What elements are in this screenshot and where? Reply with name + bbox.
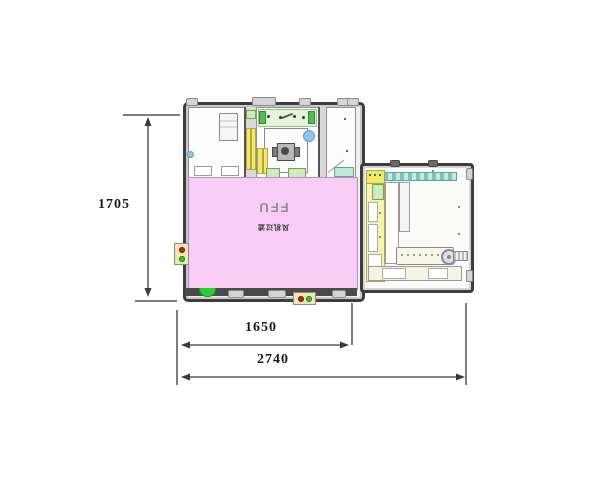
fastener-dot [379,236,381,238]
fastener-dot [267,115,270,118]
lifting-tab [299,98,311,106]
side-tab [466,168,473,180]
green-indicator-light [179,256,185,262]
inner-width-dimension-label: 1650 [236,320,286,336]
total-width-dimension-arrow [180,371,466,383]
fastener-dot [374,174,376,176]
lifting-tab [347,98,359,106]
band-end-block [259,111,266,124]
side-indicator-panel [174,243,189,265]
lifting-tab [428,160,438,167]
machine-foot [268,290,286,298]
fastener-dot [344,118,346,120]
lifting-tab [186,98,198,106]
extension-line-left [176,310,178,385]
panel-slot [368,202,378,222]
fastener-dot [302,116,305,119]
vertical-dimension-arrow [141,116,155,298]
door-notch [221,166,239,176]
door-notch [194,166,212,176]
vertical-guide [399,182,410,232]
linear-rail [383,172,457,181]
fastener-dot [379,174,381,176]
bottom-indicator-panel [293,292,316,305]
ffu-zone: FFU 风机过滤 [188,177,358,290]
fastener-dot [458,233,460,235]
terminal-block [366,170,385,184]
inner-width-dimension-arrow [180,339,350,351]
red-indicator-light [179,247,185,253]
band-end-block [308,111,315,124]
height-dimension-label: 1705 [94,197,134,213]
red-indicator-light [298,296,304,302]
machine-foot [332,290,346,298]
ffu-sublabel: 风机过滤 [189,222,357,232]
extension-line-mid [351,303,353,345]
lifting-tab [390,160,400,167]
fastener-dot [458,206,460,208]
fastener-dot [379,212,381,214]
drawing-canvas: 1705 FFU 风机过滤 [0,0,600,500]
green-indicator-light [306,296,312,302]
motor-shaft [453,251,468,261]
fastener-dot [346,150,348,152]
fastener-dot [432,170,434,172]
lifting-tab [252,97,276,106]
fastener-dot [293,115,296,118]
extension-line-bottom-left [135,300,177,302]
ffu-label: FFU [189,200,357,215]
connector-block [246,110,256,119]
machine-foot [228,290,244,298]
base-segment [428,268,448,279]
small-unit [334,167,354,177]
port-circle-large [303,130,315,142]
panel-slot [368,224,378,252]
mechanism-center [281,147,289,155]
port-circle-small [187,151,194,158]
control-device [219,113,238,141]
fastener-dot [369,174,371,176]
connector-block [372,184,384,200]
total-width-dimension-label: 2740 [248,352,298,368]
base-segment [382,268,406,279]
side-tab [466,270,473,282]
